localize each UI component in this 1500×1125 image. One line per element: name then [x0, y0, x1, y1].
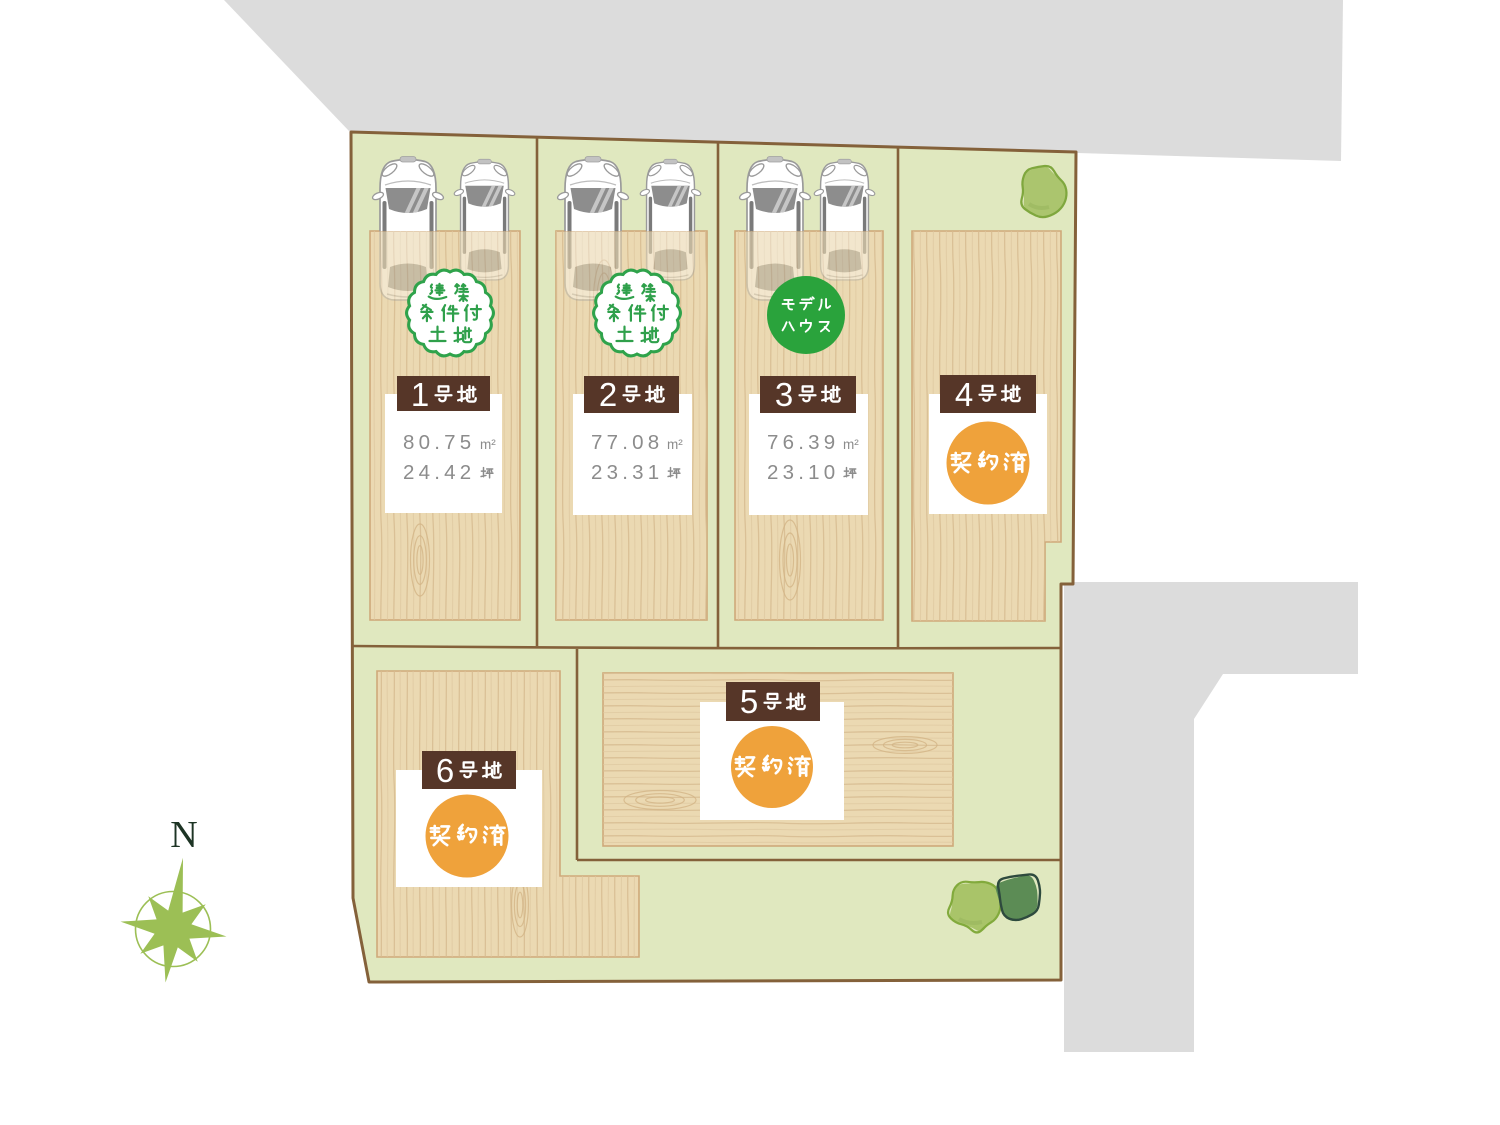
svg-text:23.10: 23.10: [767, 461, 839, 484]
svg-text:m²: m²: [667, 437, 683, 452]
svg-text:76.39: 76.39: [767, 431, 839, 454]
svg-text:24.42: 24.42: [403, 461, 475, 484]
svg-text:80.75: 80.75: [403, 431, 475, 454]
svg-text:m²: m²: [843, 437, 859, 452]
svg-text:N: N: [170, 814, 197, 856]
svg-text:4: 4: [955, 376, 973, 413]
svg-text:77.08: 77.08: [591, 431, 663, 454]
svg-text:2: 2: [599, 376, 617, 413]
svg-text:1: 1: [411, 376, 429, 413]
svg-text:6: 6: [436, 752, 454, 789]
svg-text:m²: m²: [480, 437, 496, 452]
svg-text:23.31: 23.31: [591, 461, 663, 484]
svg-text:5: 5: [740, 683, 758, 720]
svg-text:3: 3: [775, 376, 793, 413]
